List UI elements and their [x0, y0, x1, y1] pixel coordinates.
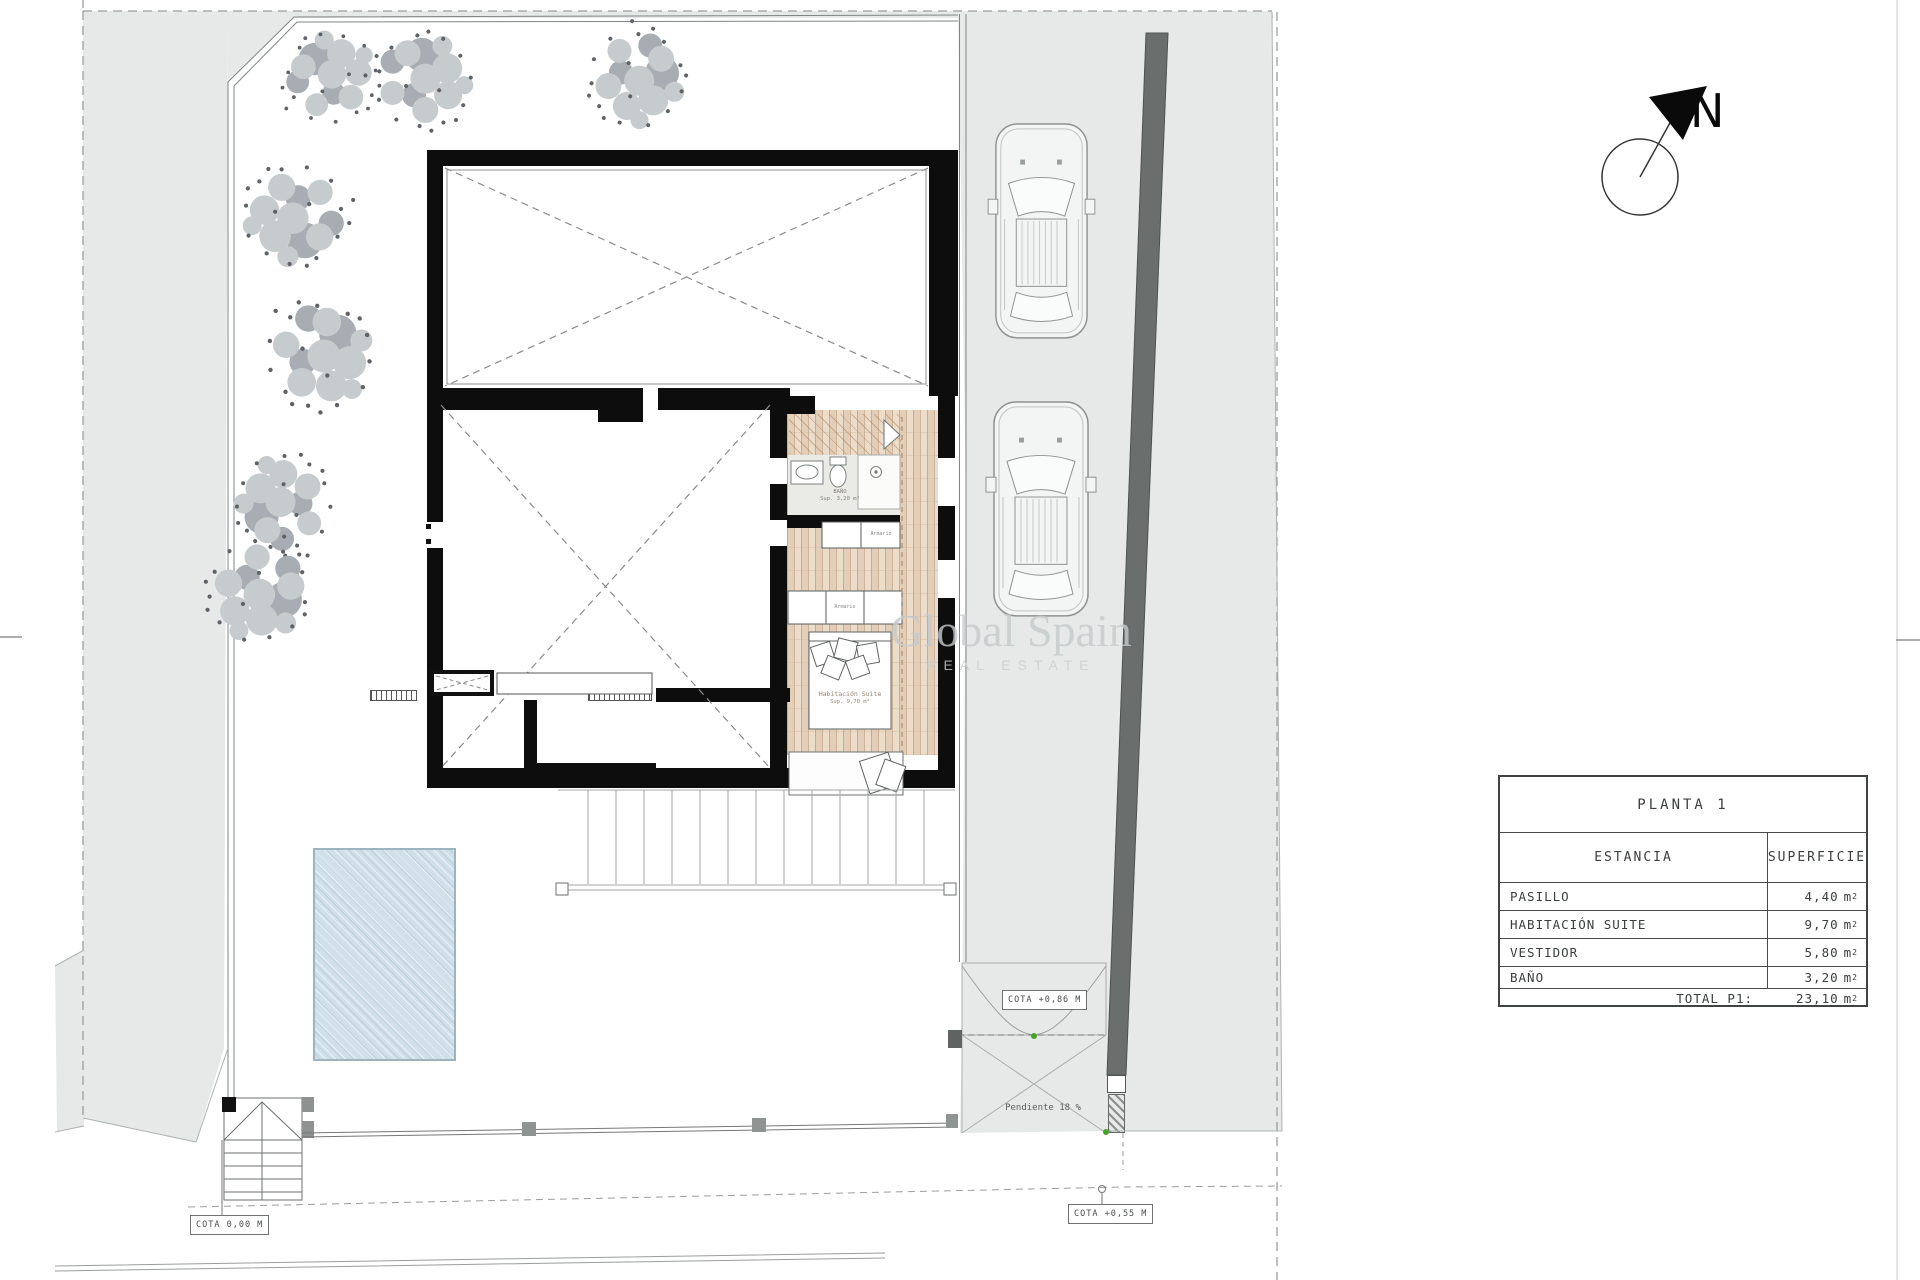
bed [809, 632, 891, 729]
table-total-row: TOTAL P1: 23,10m2 [1500, 988, 1866, 1007]
north-letter: N [1690, 84, 1724, 138]
total-label: TOTAL P1: [1500, 989, 1767, 1007]
table-row: BAÑO 3,20m2 [1500, 966, 1866, 988]
row-area: 3,20m2 [1767, 967, 1866, 988]
car-bottom [986, 402, 1096, 616]
garden-stairs [222, 1097, 314, 1200]
trees [185, 8, 706, 664]
table-title: PLANTA 1 [1500, 777, 1866, 832]
col-estancia: ESTANCIA [1500, 833, 1767, 882]
row-area: 4,40m2 [1767, 883, 1866, 910]
table-row: VESTIDOR 5,80m2 [1500, 938, 1866, 966]
exterior-stairs [556, 790, 956, 895]
areas-table: PLANTA 1 ESTANCIA SUPERFICIE PASILLO 4,4… [1498, 775, 1868, 1007]
row-name: VESTIDOR [1500, 939, 1767, 966]
armario-label-1: Armario [864, 531, 898, 537]
armario-label-2: Armario [828, 604, 862, 610]
row-name: HABITACIÓN SUITE [1500, 911, 1767, 938]
garden-fence [302, 1114, 958, 1137]
table-header: ESTANCIA SUPERFICIE [1500, 832, 1866, 882]
table-row: HABITACIÓN SUITE 9,70m2 [1500, 910, 1866, 938]
row-name: BAÑO [1500, 967, 1767, 988]
floor-plan-sheet: N Global Spain REAL ESTATE COTA 0,00 M C… [0, 0, 1920, 1280]
cota-0-label: COTA 0,00 M [190, 1215, 269, 1235]
car-top [988, 124, 1095, 338]
cota-086-label: COTA +0,86 M [1002, 990, 1087, 1010]
terrace [789, 752, 906, 795]
row-area: 9,70m2 [1767, 911, 1866, 938]
suite-area: Sup. 9,70 m² [806, 699, 894, 706]
row-name: PASILLO [1500, 883, 1767, 910]
table-row: PASILLO 4,40m2 [1500, 882, 1866, 910]
cota-055-label: COTA +0,55 M [1068, 1204, 1153, 1224]
col-superficie: SUPERFICIE [1767, 833, 1866, 882]
pendiente-label: Pendiente 18 % [995, 1103, 1091, 1113]
plan-linework [0, 0, 1920, 1280]
suite-room-label: Habitación Suite Sup. 9,70 m² [806, 690, 894, 706]
row-area: 5,80m2 [1767, 939, 1866, 966]
bath-area: Sup. 3,20 m² [800, 496, 880, 503]
total-area: 23,10m2 [1767, 989, 1866, 1007]
suite-name: Habitación Suite [806, 690, 894, 699]
bath-room-label: BAÑO Sup. 3,20 m² [800, 489, 880, 504]
